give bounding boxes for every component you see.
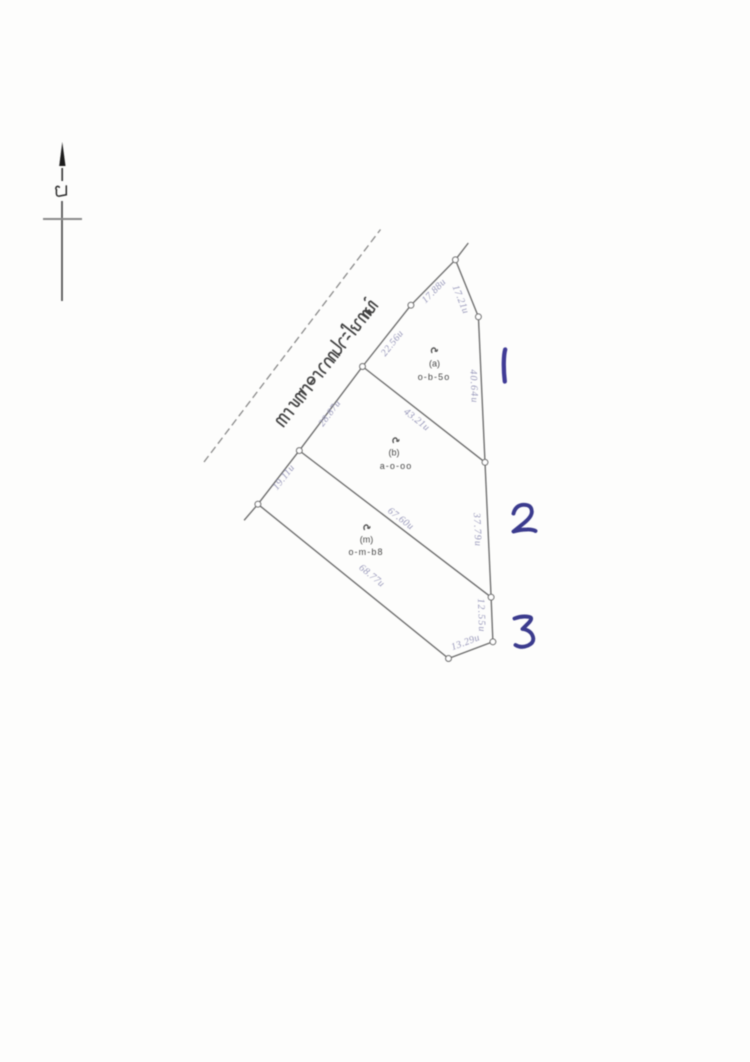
svg-text:37.79u: 37.79u <box>471 512 484 548</box>
svg-text:(a): (a) <box>429 359 440 369</box>
svg-text:12.55u: 12.55u <box>475 598 487 632</box>
svg-text:(b): (b) <box>389 448 400 458</box>
svg-text:o-b-5o: o-b-5o <box>418 372 451 382</box>
svg-text:a-o-oo: a-o-oo <box>380 461 413 471</box>
svg-text:40.64u: 40.64u <box>467 369 480 404</box>
svg-text:(m): (m) <box>360 535 374 545</box>
svg-text:o-m-b8: o-m-b8 <box>348 547 383 557</box>
